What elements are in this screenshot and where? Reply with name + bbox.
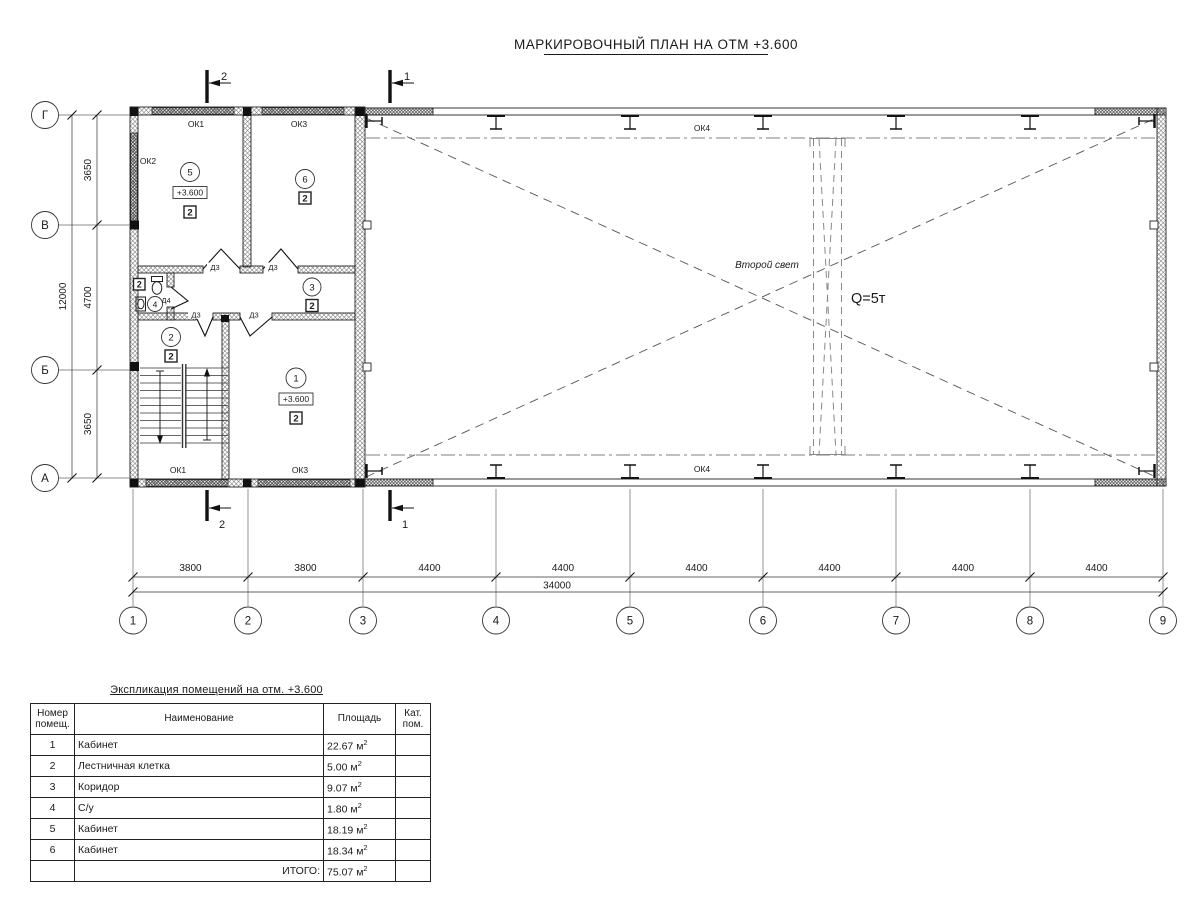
table-header-row: Номер помещ. Наименование Площадь Кат. п… xyxy=(31,704,431,735)
room-category xyxy=(396,735,431,756)
svg-text:3650: 3650 xyxy=(83,158,94,181)
svg-text:4400: 4400 xyxy=(418,563,441,574)
label-ok1-top: ОК1 xyxy=(188,119,205,129)
axis-bubbles-left: Г В Б А xyxy=(32,102,59,492)
room-name: Кабинет xyxy=(75,735,324,756)
table-title: Экспликация помещений на отм. +3.600 xyxy=(30,684,403,696)
room-marker-6: 6 2 xyxy=(296,170,315,205)
table-row: 2 Лестничная клетка 5.00 м2 xyxy=(31,756,431,777)
room-marker-1: 1 +3.600 2 xyxy=(279,368,313,425)
svg-text:6: 6 xyxy=(760,616,766,628)
hall-annotations: Второй свет Q=5т xyxy=(735,260,886,307)
label-d3-room2: Д3 xyxy=(191,311,200,320)
room-area: 5.00 м2 xyxy=(324,756,396,777)
window-ok3-top xyxy=(262,108,344,115)
page-title: МАРКИРОВОЧНЫЙ ПЛАН НА ОТМ +3.600 xyxy=(514,37,798,52)
crane-symbol xyxy=(810,139,845,455)
svg-text:5: 5 xyxy=(187,168,192,179)
wall-right xyxy=(1157,108,1166,486)
table-total-row: ИТОГО: 75.07 м2 xyxy=(31,861,431,882)
axis-bubbles-bottom: 1 2 3 4 5 6 7 8 9 xyxy=(120,607,1177,634)
room-number: 6 xyxy=(31,840,75,861)
label-d3-room5: Д3 xyxy=(210,263,219,272)
header-room-number: Номер помещ. xyxy=(31,704,75,735)
room-marker-5: 5 +3.600 2 xyxy=(173,163,207,219)
window-ok3-bottom xyxy=(258,480,350,487)
svg-text:4400: 4400 xyxy=(685,563,708,574)
room-number: 5 xyxy=(31,819,75,840)
dimensions xyxy=(68,111,1168,597)
label-ok3-bottom: ОК3 xyxy=(292,465,309,475)
svg-text:4: 4 xyxy=(153,300,158,310)
crane-capacity-label: Q=5т xyxy=(851,291,886,307)
window-ok1-bottom xyxy=(146,480,228,487)
room-name: С/у xyxy=(75,798,324,819)
steel-columns xyxy=(367,114,1155,478)
svg-text:3650: 3650 xyxy=(83,412,94,435)
room-name: Кабинет xyxy=(75,840,324,861)
room-schedule: Экспликация помещений на отм. +3.600 Ном… xyxy=(30,684,403,882)
wall-piers xyxy=(130,108,1158,488)
room-marker-3: 3 2 xyxy=(303,278,321,312)
total-empty-cell xyxy=(31,861,75,882)
window-ok1-top xyxy=(152,108,234,115)
category-mark: 2 xyxy=(187,208,192,219)
category-mark: 2 xyxy=(309,301,314,312)
wall-axis3 xyxy=(355,107,365,487)
category-mark: 2 xyxy=(137,280,142,290)
drawing-sheet: МАРКИРОВОЧНЫЙ ПЛАН НА ОТМ +3.600 xyxy=(0,0,1200,900)
room-number: 2 xyxy=(31,756,75,777)
table-row: 4 С/у 1.80 м2 xyxy=(31,798,431,819)
label-ok4-top: ОК4 xyxy=(694,123,711,133)
room-name: Коридор xyxy=(75,777,324,798)
room-name: Лестничная клетка xyxy=(75,756,324,777)
category-mark: 2 xyxy=(302,194,307,205)
svg-text:1: 1 xyxy=(130,616,136,628)
dimension-labels: 3800 3800 4400 4400 4400 4400 4400 4400 … xyxy=(58,158,1108,591)
svg-text:1: 1 xyxy=(402,519,408,531)
svg-text:2: 2 xyxy=(221,71,227,83)
stair-arrow-down xyxy=(156,371,164,444)
total-height-dim: 12000 xyxy=(58,282,69,310)
wall-room1-2 xyxy=(222,320,229,479)
hall-markings xyxy=(366,118,1156,477)
total-category-cell xyxy=(396,861,431,882)
total-width-dim: 34000 xyxy=(543,581,571,592)
room-schedule-table: Номер помещ. Наименование Площадь Кат. п… xyxy=(30,703,431,882)
label-d3-room1: Д3 xyxy=(249,311,258,320)
svg-text:1: 1 xyxy=(404,71,410,83)
section-mark-2-top: 2 xyxy=(205,70,231,103)
room-category xyxy=(396,756,431,777)
svg-text:4400: 4400 xyxy=(1085,563,1108,574)
category-mark: 2 xyxy=(293,414,298,425)
room-number: 1 xyxy=(31,735,75,756)
door-room2 xyxy=(196,317,213,336)
room-area: 18.34 м2 xyxy=(324,840,396,861)
svg-text:2: 2 xyxy=(168,333,173,344)
toilet-icon xyxy=(152,277,163,295)
room-name: Кабинет xyxy=(75,819,324,840)
svg-text:4: 4 xyxy=(493,616,500,628)
table-row: 6 Кабинет 18.34 м2 xyxy=(31,840,431,861)
room-category xyxy=(396,840,431,861)
svg-text:7: 7 xyxy=(893,616,899,628)
svg-text:4400: 4400 xyxy=(818,563,841,574)
svg-text:3: 3 xyxy=(309,283,314,294)
svg-text:4400: 4400 xyxy=(952,563,975,574)
room-number: 4 xyxy=(31,798,75,819)
doors xyxy=(171,249,298,336)
room-area: 1.80 м2 xyxy=(324,798,396,819)
category-mark: 2 xyxy=(168,352,173,363)
door-wc xyxy=(171,287,188,309)
svg-text:2: 2 xyxy=(245,616,251,628)
elevation-mark: +3.600 xyxy=(177,188,204,198)
room-number: 3 xyxy=(31,777,75,798)
table-row: 1 Кабинет 22.67 м2 xyxy=(31,735,431,756)
wall-room5-6 xyxy=(243,115,251,267)
section-mark-1-top: 1 xyxy=(388,70,414,103)
section-mark-2-bottom: 2 xyxy=(205,490,231,531)
room-category xyxy=(396,798,431,819)
svg-text:6: 6 xyxy=(302,175,307,186)
svg-text:4700: 4700 xyxy=(83,286,94,309)
header-area: Площадь xyxy=(324,704,396,735)
room-category xyxy=(396,777,431,798)
floor-plan-drawing: МАРКИРОВОЧНЫЙ ПЛАН НА ОТМ +3.600 xyxy=(0,0,1200,660)
svg-text:3800: 3800 xyxy=(179,563,202,574)
wall-wc xyxy=(167,273,174,287)
svg-text:1: 1 xyxy=(293,374,298,385)
svg-text:3: 3 xyxy=(360,616,366,628)
label-ok3-top: ОК3 xyxy=(291,119,308,129)
stair-arrow-up xyxy=(203,368,211,440)
total-area: 75.07 м2 xyxy=(324,861,396,882)
i-beam-icon xyxy=(367,114,1155,478)
svg-text:Б: Б xyxy=(41,365,49,377)
svg-text:4400: 4400 xyxy=(552,563,575,574)
svg-text:5: 5 xyxy=(627,616,633,628)
stairs xyxy=(140,364,228,448)
room-area: 22.67 м2 xyxy=(324,735,396,756)
room-area: 18.19 м2 xyxy=(324,819,396,840)
table-row: 5 Кабинет 18.19 м2 xyxy=(31,819,431,840)
svg-text:3800: 3800 xyxy=(294,563,317,574)
label-d3-room6: Д3 xyxy=(268,263,277,272)
window-ok2 xyxy=(131,133,138,225)
room-category xyxy=(396,819,431,840)
drawing-title: МАРКИРОВОЧНЫЙ ПЛАН НА ОТМ +3.600 xyxy=(514,37,798,55)
svg-text:Г: Г xyxy=(42,110,49,122)
elevation-mark: +3.600 xyxy=(283,394,310,404)
svg-text:8: 8 xyxy=(1027,616,1033,628)
walls xyxy=(130,107,1166,487)
room-area: 9.07 м2 xyxy=(324,777,396,798)
total-label: ИТОГО: xyxy=(75,861,324,882)
room-marker-2: 2 2 xyxy=(162,328,181,363)
header-name: Наименование xyxy=(75,704,324,735)
door-room1 xyxy=(240,317,272,336)
header-category: Кат. пом. xyxy=(396,704,431,735)
svg-text:9: 9 xyxy=(1160,616,1166,628)
svg-text:2: 2 xyxy=(219,519,225,531)
table-row: 3 Коридор 9.07 м2 xyxy=(31,777,431,798)
section-mark-1-bottom: 1 xyxy=(388,490,414,531)
label-ok1-bottom: ОК1 xyxy=(170,465,187,475)
label-ok2: ОК2 xyxy=(140,156,157,166)
svg-text:А: А xyxy=(41,473,49,485)
label-ok4-bottom: ОК4 xyxy=(694,464,711,474)
second-light-label: Второй свет xyxy=(735,260,799,271)
svg-text:В: В xyxy=(41,220,49,232)
